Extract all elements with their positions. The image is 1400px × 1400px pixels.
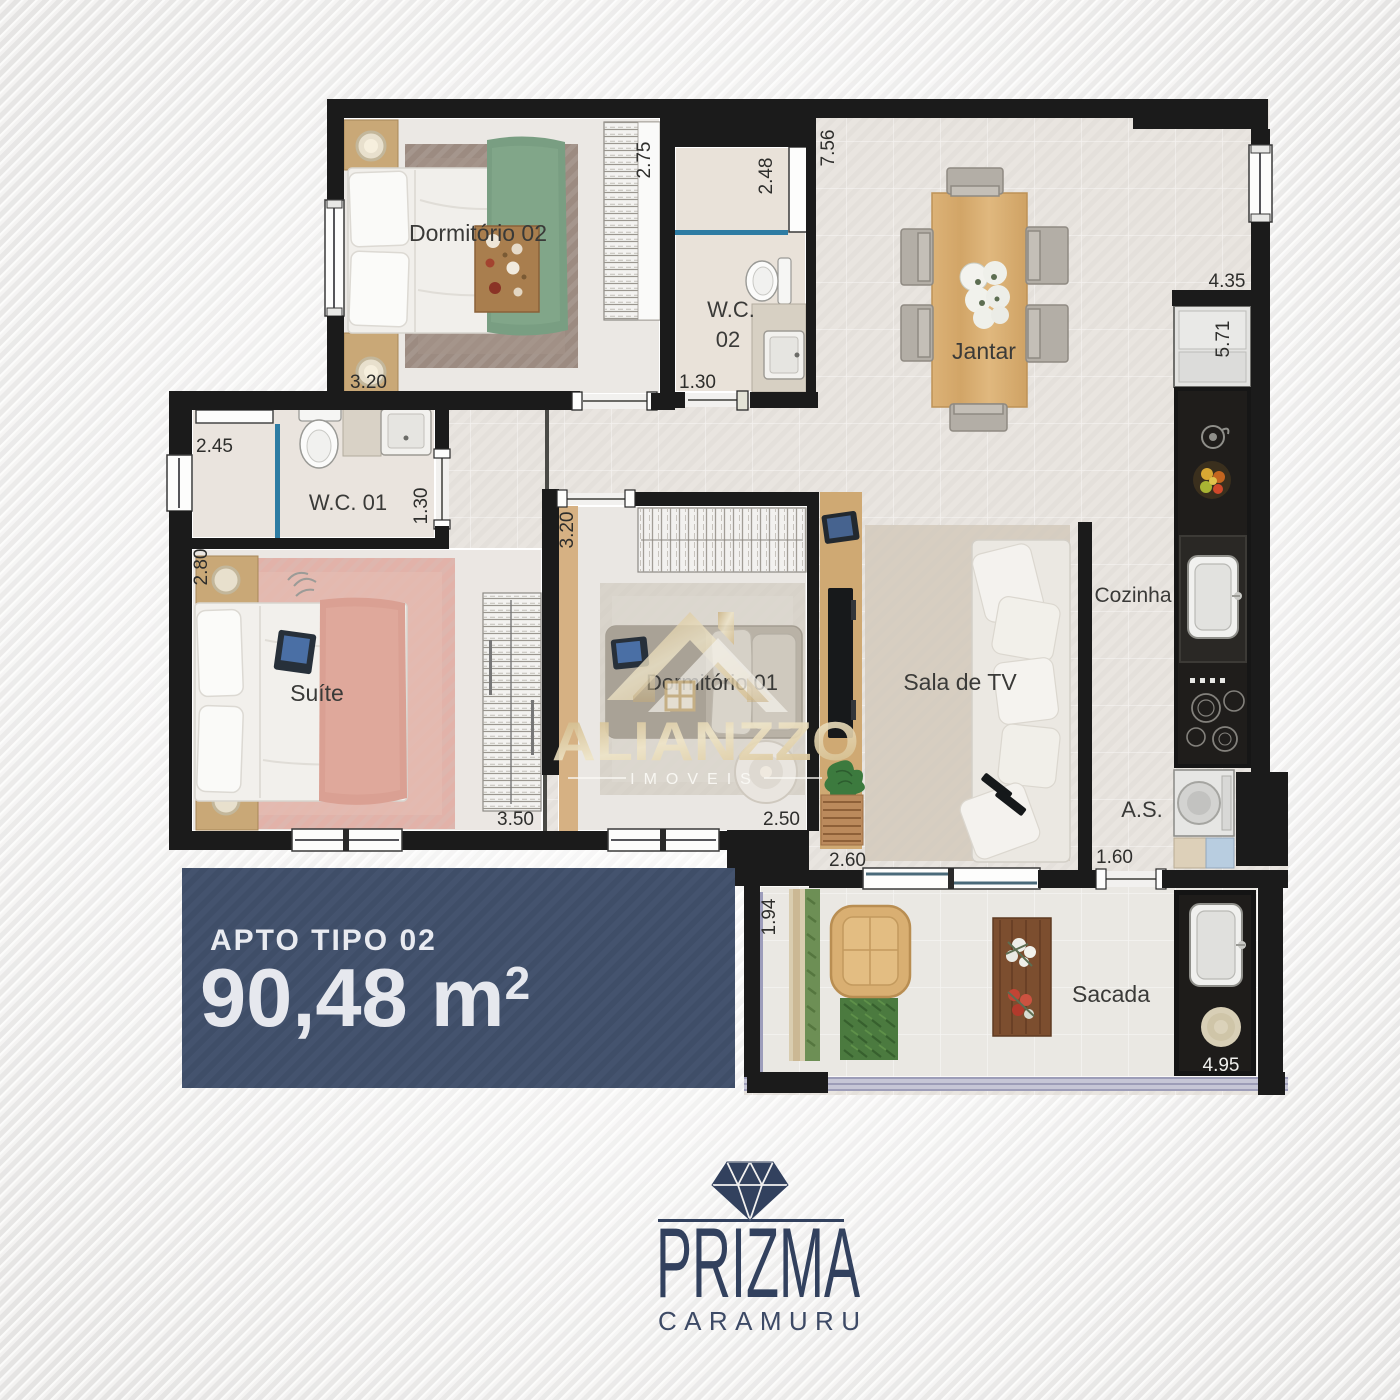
- svg-text:2.50: 2.50: [763, 809, 800, 830]
- svg-text:3.50: 3.50: [497, 809, 534, 830]
- svg-text:1.30: 1.30: [411, 488, 432, 525]
- svg-text:4.35: 4.35: [1209, 271, 1246, 292]
- svg-text:1.94: 1.94: [759, 898, 780, 935]
- svg-text:W.C. 01: W.C. 01: [309, 490, 387, 515]
- svg-text:1.30: 1.30: [679, 372, 716, 393]
- svg-text:Sacada: Sacada: [1072, 981, 1150, 1007]
- svg-text:2.80: 2.80: [191, 549, 212, 586]
- svg-text:2.75: 2.75: [634, 142, 655, 179]
- svg-text:2.60: 2.60: [829, 850, 866, 871]
- svg-text:2.48: 2.48: [756, 158, 777, 195]
- svg-text:Suíte: Suíte: [290, 680, 344, 706]
- svg-text:3.20: 3.20: [557, 512, 578, 549]
- svg-text:IMOVEIS: IMOVEIS: [630, 771, 760, 788]
- svg-text:2.45: 2.45: [196, 436, 233, 457]
- svg-text:3.20: 3.20: [350, 372, 387, 393]
- svg-text:Dormitório 02: Dormitório 02: [409, 220, 547, 246]
- svg-text:CARAMURU: CARAMURU: [658, 1306, 860, 1336]
- svg-text:4.95: 4.95: [1203, 1055, 1240, 1076]
- svg-text:Sala de TV: Sala de TV: [903, 669, 1017, 695]
- svg-text:Jantar: Jantar: [952, 338, 1016, 364]
- svg-text:Cozinha: Cozinha: [1094, 584, 1171, 607]
- svg-text:A.S.: A.S.: [1121, 797, 1163, 822]
- svg-text:02: 02: [716, 327, 740, 352]
- svg-text:5.71: 5.71: [1213, 321, 1234, 358]
- svg-text:W.C.: W.C.: [707, 297, 755, 322]
- svg-text:ALIANZZO: ALIANZZO: [552, 710, 859, 772]
- svg-text:PRIZMA: PRIZMA: [656, 1207, 860, 1318]
- svg-text:90,48 m2: 90,48 m2: [200, 951, 530, 1044]
- svg-text:1.60: 1.60: [1096, 847, 1133, 868]
- svg-text:7.56: 7.56: [818, 130, 839, 167]
